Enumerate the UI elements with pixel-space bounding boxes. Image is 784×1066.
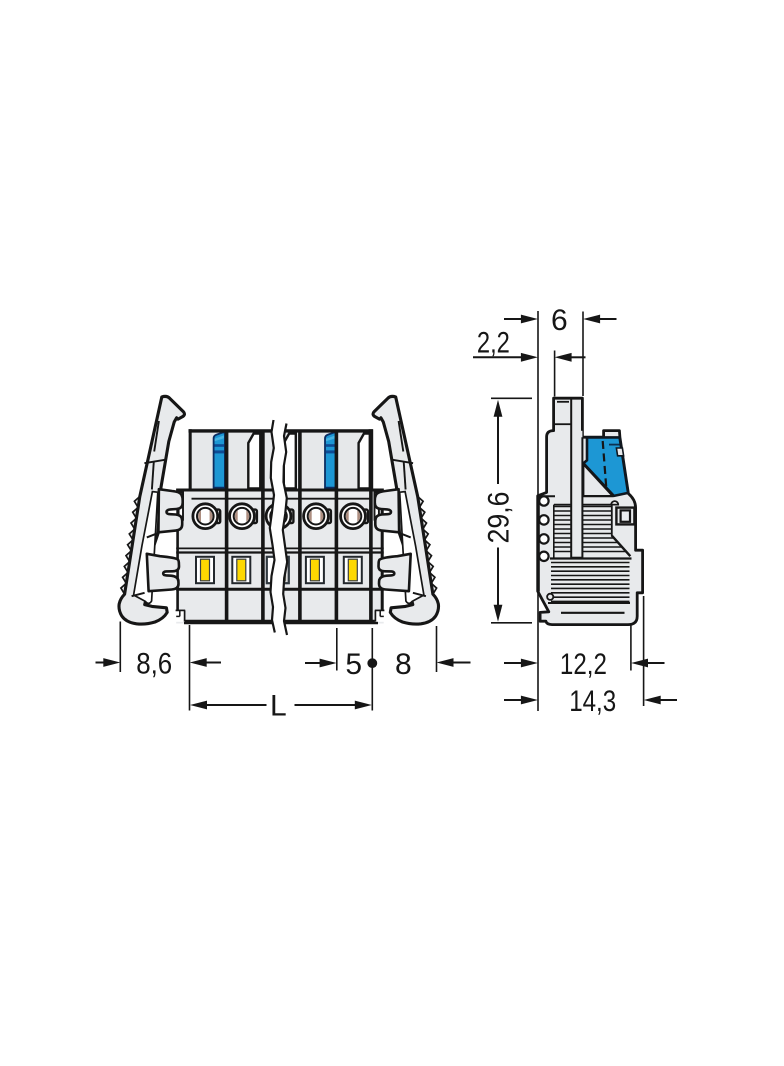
- svg-text:14,3: 14,3: [569, 685, 616, 718]
- svg-text:6: 6: [551, 304, 568, 337]
- svg-text:L: L: [270, 690, 287, 723]
- svg-text:29,6: 29,6: [483, 492, 516, 544]
- svg-text:8,6: 8,6: [136, 648, 172, 681]
- svg-text:8: 8: [395, 648, 412, 681]
- svg-text:5: 5: [345, 648, 362, 681]
- svg-text:12,2: 12,2: [560, 648, 607, 681]
- svg-text:2,2: 2,2: [477, 327, 510, 360]
